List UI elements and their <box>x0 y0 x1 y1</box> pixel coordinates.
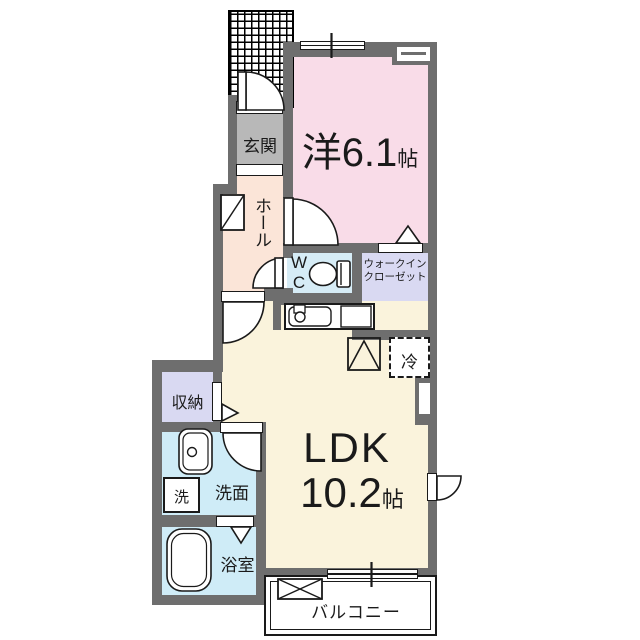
label-western-room: 洋6.1帖 <box>292 120 428 178</box>
storage-door-triangle <box>222 404 238 421</box>
cupboard-triangle <box>349 341 379 369</box>
western-room-unit: 帖 <box>397 148 418 171</box>
closet-line1: ウォークイン <box>361 258 429 271</box>
door-leaf-wc <box>275 258 283 288</box>
floor-plan: 玄関 ホール 洋6.1帖 W C ウォークイン クローゼット 冷 収納 洗 洗面… <box>0 0 640 640</box>
label-balcony: バルコニー <box>286 598 426 623</box>
door-arc-western-room <box>293 199 338 245</box>
label-ldk: LDK <box>287 424 407 472</box>
label-ldk-size: 10.2帖 <box>282 469 422 517</box>
ldk-size: 10.2 <box>300 469 382 516</box>
label-washer: 洗 <box>163 486 200 507</box>
label-wc: W C <box>288 253 310 293</box>
washbasin-drain <box>188 448 197 457</box>
door-leaf-entrance <box>238 72 246 110</box>
kitchen-faucet-knob <box>295 312 305 322</box>
western-room-size: 6.1 <box>342 131 398 175</box>
floor-plan-details <box>0 0 640 640</box>
kitchen-stove-box <box>341 306 371 327</box>
closet-line2: クローゼット <box>361 271 429 284</box>
label-washroom: 洗面 <box>204 479 260 504</box>
western-room-name: 洋 <box>302 131 342 175</box>
door-arc-washroom <box>223 433 261 471</box>
bathtub-inner <box>172 534 207 587</box>
door-arc-hall-ldk <box>223 302 264 343</box>
wc-line1: W <box>288 253 310 273</box>
toilet-tank-icon <box>337 261 350 287</box>
label-storage: 収納 <box>162 389 213 413</box>
door-arc-east <box>437 476 461 500</box>
closet-door-triangle <box>396 226 420 243</box>
label-bathroom: 浴室 <box>210 551 265 576</box>
ldk-unit: 帖 <box>382 487 404 512</box>
cupboard-box <box>348 338 380 370</box>
label-hall: ホール <box>249 185 274 260</box>
door-leaf-western-room <box>284 198 293 245</box>
toilet-bowl-icon <box>310 263 337 286</box>
label-entrance: 玄関 <box>237 132 283 157</box>
label-walk-in-closet: ウォークイン クローゼット <box>361 258 429 284</box>
wc-line2: C <box>288 273 310 293</box>
door-arc-entrance <box>246 72 284 110</box>
bathroom-door-triangle <box>231 527 251 543</box>
label-refrigerator: 冷 <box>389 348 430 373</box>
